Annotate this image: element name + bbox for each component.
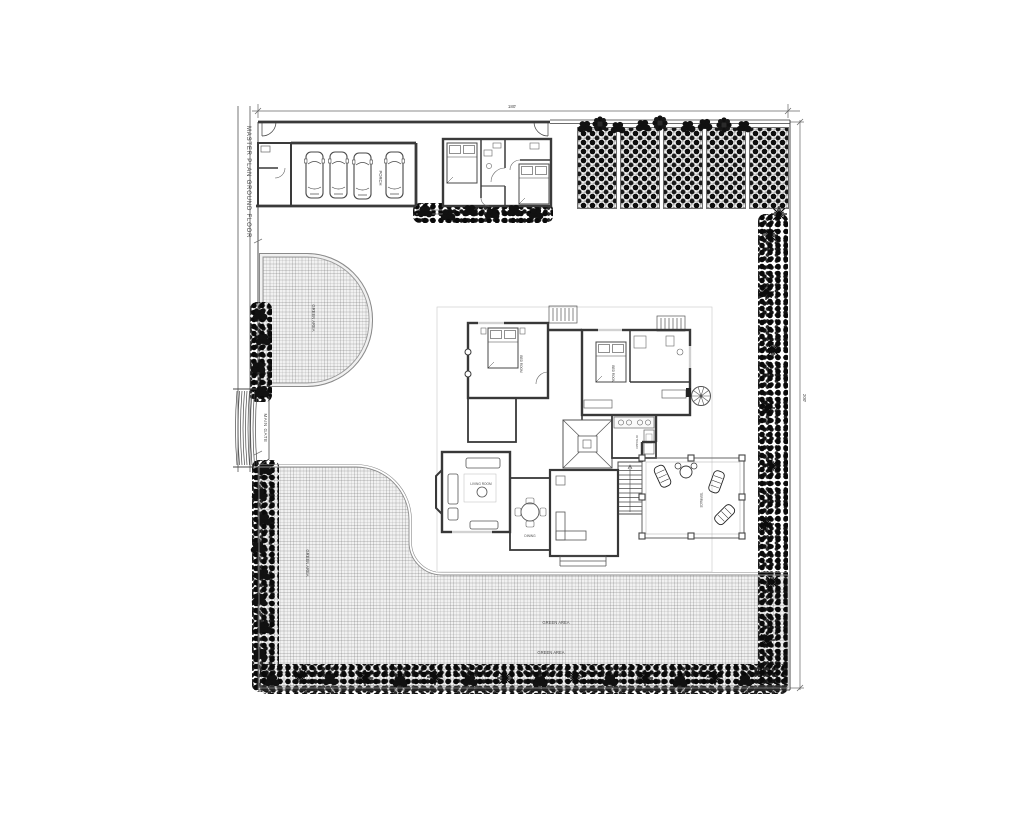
car-icon (329, 152, 349, 198)
bush-icon (681, 121, 696, 132)
car-icon (305, 152, 325, 198)
room-label: TERRACE (699, 492, 703, 507)
palm-icon (771, 206, 787, 222)
master-plan-sheet: MASTER PLAN GROUND FLOOR 180' 200' (0, 0, 1024, 819)
dimension-right (790, 119, 804, 691)
palm-icon (764, 574, 780, 590)
car-icon (385, 152, 405, 198)
palm-icon (758, 516, 774, 532)
plan-title: MASTER PLAN GROUND FLOOR (245, 126, 251, 238)
room-label: BED ROOM (611, 365, 615, 383)
bed-icon (447, 143, 477, 183)
palm-icon (764, 458, 780, 474)
main-house: BED ROOM BED ROOM KITCHEN DINING LIVING … (436, 306, 746, 572)
dimension-right-label: 200' (802, 394, 807, 403)
palm-icon (759, 400, 775, 416)
main-gate-label: MAIN GATE (263, 414, 268, 443)
site-plan-linework: MASTER PLAN GROUND FLOOR 180' 200' (0, 0, 1024, 819)
bed-icon (596, 342, 626, 382)
dimension-top (252, 104, 800, 118)
green-area-label: GREEN AREA (305, 549, 310, 576)
green-area-label: GREEN AREA (542, 620, 569, 625)
room-label: LIVING ROOM (470, 482, 492, 486)
bed-icon (488, 328, 518, 368)
bush-icon (737, 121, 752, 132)
bottom-border-trees (265, 668, 753, 687)
palm-icon (762, 227, 778, 243)
bed-icon (519, 164, 549, 204)
car-icon (353, 153, 373, 199)
room-label: BED ROOM (519, 355, 523, 373)
guard-room (258, 143, 291, 206)
palm-icon (759, 632, 775, 648)
kitchen-counter (614, 417, 654, 428)
hedge-right-palms (758, 227, 781, 648)
bush-icon (578, 121, 593, 132)
tree-icon (592, 116, 607, 131)
gate-hatch-icon (236, 391, 258, 465)
room-label: KITCHEN (635, 435, 639, 448)
room-label: DINING (524, 534, 536, 538)
dimension-top-label: 180' (508, 104, 517, 109)
palm-icon (765, 342, 781, 358)
left-shrub-bushes (251, 309, 273, 661)
bush-icon (636, 120, 651, 131)
tree-icon (652, 115, 667, 130)
walkway-shrub-bushes (418, 205, 544, 221)
orchard-trees (578, 115, 787, 222)
green-area-label: GREEN AREA (537, 650, 564, 655)
green-area-label: GREEN AREA (311, 304, 316, 331)
porch-label: PORCH (378, 170, 383, 185)
palm-icon (758, 284, 774, 300)
bush-icon (698, 119, 713, 130)
